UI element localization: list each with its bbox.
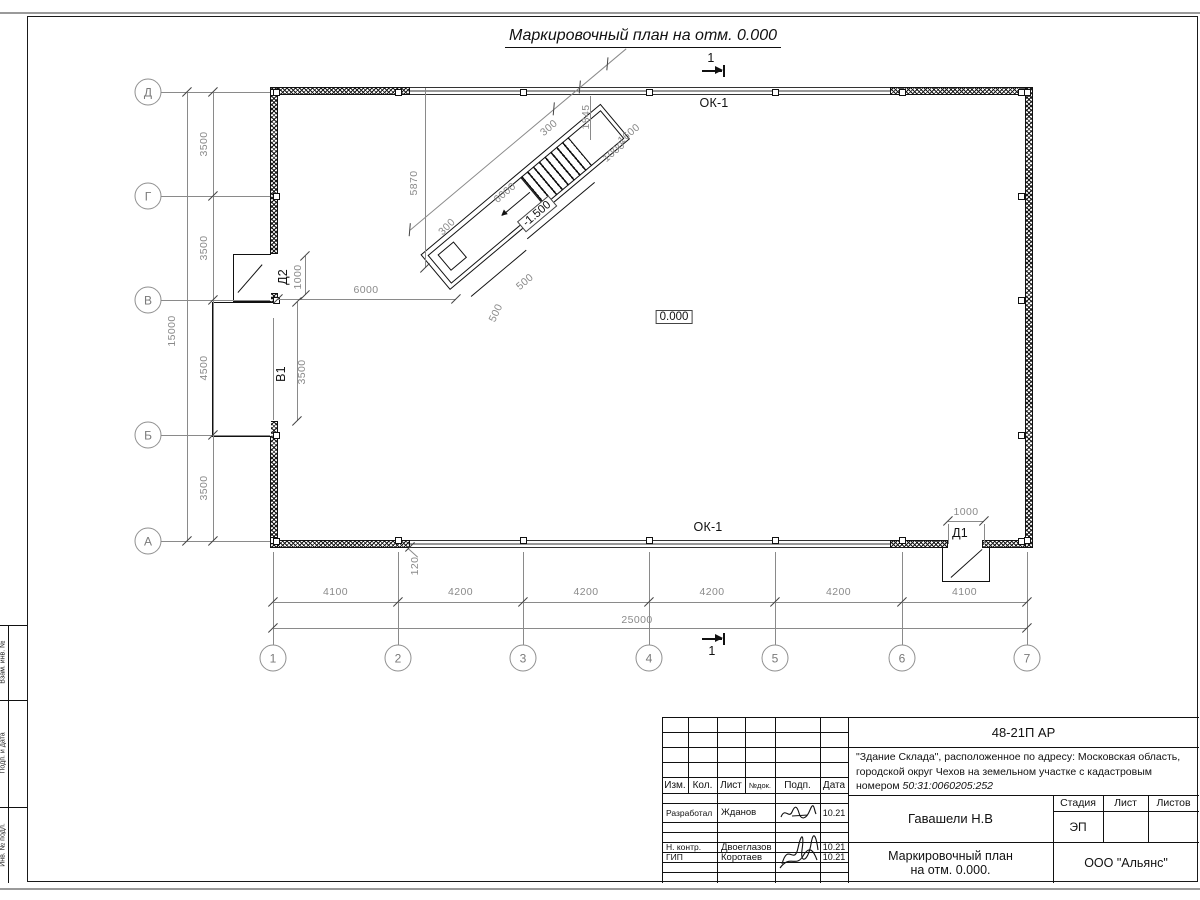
row-date: 10.21 <box>820 842 848 852</box>
client-name: Гавашели Н.В <box>848 795 1053 842</box>
col-ndok: №док. <box>745 777 775 793</box>
row-date: 10.21 <box>820 852 848 862</box>
project-description: "Здание Склада", расположенное по адресу… <box>848 747 1199 795</box>
drawing-sheet: Маркировочный план на отм. 0.000 <box>0 0 1200 900</box>
stage-label: Стадия <box>1053 795 1103 811</box>
col-kol: Кол. <box>688 777 717 793</box>
sheet-title-cell: Маркировочный план на отм. 0.000. <box>848 842 1053 883</box>
row-role: Разработал <box>662 803 717 822</box>
row-name: Коротаев <box>717 852 775 862</box>
title-block: 48-21П АР "Здание Склада", расположенное… <box>0 0 1200 900</box>
col-izm: Изм. <box>662 777 688 793</box>
row-name: Жданов <box>717 803 775 822</box>
col-list: Лист <box>717 777 745 793</box>
sheets-label: Листов <box>1148 795 1199 811</box>
company-name: ООО "Альянс" <box>1053 842 1199 883</box>
signature <box>778 804 818 822</box>
stage-value: ЭП <box>1053 811 1103 842</box>
col-podp: Подп. <box>775 777 820 793</box>
list-label: Лист <box>1103 795 1148 811</box>
row-name: Двоеглазов <box>717 842 775 852</box>
col-data: Дата <box>820 777 848 793</box>
cadastral-number: 50:31:0060205:252 <box>903 780 994 792</box>
row-role: ГИП <box>662 852 717 862</box>
doc-number: 48-21П АР <box>848 717 1199 747</box>
row-role: Н. контр. <box>662 842 717 852</box>
signature <box>776 834 820 870</box>
row-date: 10.21 <box>820 803 848 822</box>
